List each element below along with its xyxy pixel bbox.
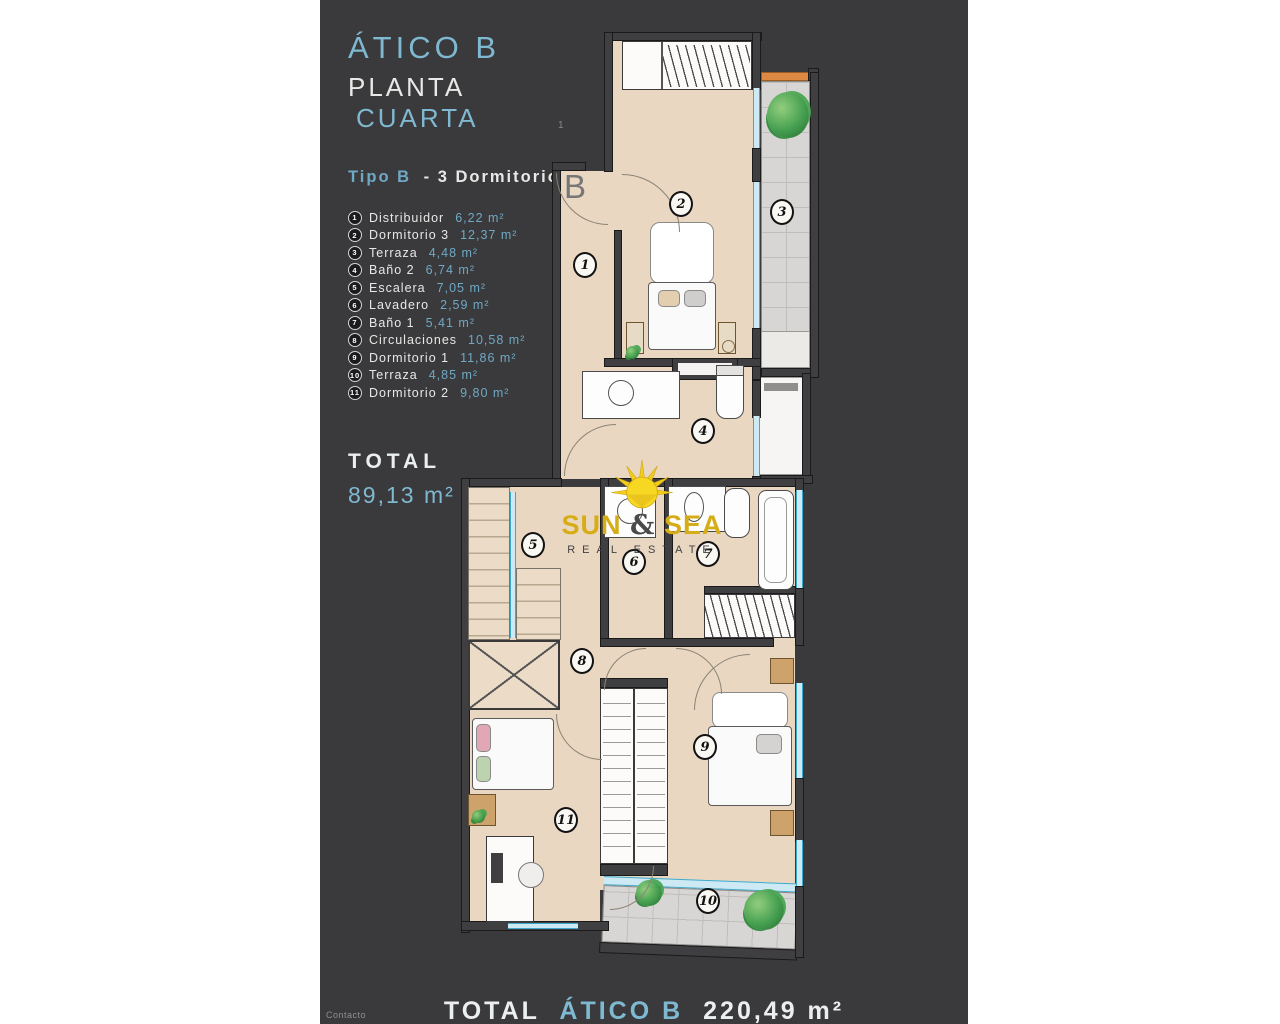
footer-label: TOTAL [444, 997, 540, 1024]
window [753, 182, 760, 328]
room-number-badge: 9 [348, 351, 362, 365]
wall [802, 373, 811, 481]
staircase [468, 487, 510, 640]
wall [614, 230, 622, 362]
page: ÁTICO B PLANTA CUARTA Tipo B - 3 Dormito… [0, 0, 1280, 1024]
room-number-badge: 2 [348, 228, 362, 242]
agency-watermark: SUN & SEA REAL ESTATE [548, 452, 736, 556]
room-name: Dormitorio 2 [369, 386, 449, 400]
plant [744, 890, 784, 930]
room-marker: 11 [554, 807, 578, 833]
type-highlight: Tipo B [348, 168, 411, 186]
nightstand [770, 658, 794, 684]
room-name: Baño 2 [369, 263, 415, 277]
wardrobe [704, 594, 795, 638]
room-name: Baño 1 [369, 316, 415, 330]
wall [795, 588, 804, 646]
bed-pillow [476, 724, 491, 752]
stair-void [468, 640, 560, 710]
terrace-lower-patch [761, 331, 810, 368]
watermark-title: SUN & SEA [548, 510, 736, 541]
floor-word: PLANTA [348, 72, 464, 102]
unit-label: B [564, 168, 586, 206]
staircase-flight [516, 568, 561, 640]
wall [752, 148, 761, 182]
room-name: Terraza [369, 246, 418, 260]
service-niche [759, 377, 803, 475]
wardrobe [600, 688, 668, 864]
room-marker: 5 [521, 532, 545, 558]
room-marker: 1 [573, 252, 597, 278]
wall [795, 886, 804, 958]
window [753, 88, 760, 148]
wall [752, 328, 761, 380]
window [753, 416, 760, 478]
bed-cushion [756, 734, 782, 754]
wall [600, 638, 774, 647]
room-number-badge: 11 [348, 386, 362, 400]
wall [461, 478, 562, 487]
room-name: Escalera [369, 281, 426, 295]
wall [752, 380, 761, 418]
wardrobe-divider [633, 689, 635, 863]
wardrobe [622, 41, 752, 90]
plant [767, 92, 809, 138]
room-marker: 3 [770, 199, 794, 225]
laptop [491, 853, 503, 883]
plant [626, 346, 639, 359]
wall [552, 162, 561, 482]
plant [472, 810, 485, 823]
contact-label: Contacto [326, 1010, 366, 1020]
bathtub [758, 490, 794, 590]
wall [752, 32, 761, 90]
lamp [722, 340, 735, 353]
wardrobe-hangers [663, 45, 750, 87]
nightstand [770, 810, 794, 836]
window [796, 683, 803, 780]
wall [604, 32, 762, 41]
room-marker: 4 [691, 418, 715, 444]
room-marker: 9 [693, 734, 717, 760]
wall [604, 32, 613, 172]
room-name: Distribuidor [369, 211, 444, 225]
wall [810, 72, 819, 378]
footer-total: TOTAL ÁTICO B 220,49 m² [320, 997, 968, 1024]
room-number-badge: 5 [348, 281, 362, 295]
room-name: Dormitorio 1 [369, 351, 449, 365]
sink-basin [608, 380, 634, 406]
bed-cushion [658, 290, 680, 307]
room-number-badge: 7 [348, 316, 362, 330]
wall [795, 778, 804, 842]
room-number-badge: 1 [348, 211, 362, 225]
room-number-badge: 4 [348, 263, 362, 277]
footer-value: 220,49 m² [703, 997, 844, 1024]
room-name: Lavadero [369, 298, 429, 312]
toilet-tank [716, 365, 744, 376]
bed-cushion [684, 290, 706, 307]
watermark-word2: SEA [664, 510, 723, 540]
room-name: Dormitorio 3 [369, 228, 449, 242]
watermark-ampersand: & [630, 510, 655, 541]
bed-pillow [476, 756, 491, 782]
room-number-badge: 8 [348, 333, 362, 347]
footer-highlight: ÁTICO B [559, 997, 683, 1024]
window [796, 490, 803, 590]
room-number-badge: 6 [348, 298, 362, 312]
desk-chair [518, 862, 544, 888]
room-number-badge: 3 [348, 246, 362, 260]
floor-marker: 1 [558, 120, 564, 131]
sun-icon [594, 452, 690, 510]
room-marker: 2 [669, 191, 693, 217]
room-marker: 10 [696, 888, 720, 914]
bathtub-inner [764, 497, 787, 583]
room-number-badge: 10 [348, 368, 362, 382]
wardrobe-shelves [603, 691, 631, 859]
window [508, 923, 578, 929]
watermark-word1: SUN [562, 510, 622, 540]
niche-bar [764, 383, 798, 391]
terrace-edge [761, 72, 811, 81]
room-name: Terraza [369, 368, 418, 382]
room-name: Circulaciones [369, 333, 457, 347]
watermark-subtitle: REAL ESTATE [548, 544, 736, 556]
room-marker: 8 [570, 648, 594, 674]
wardrobe-shelves [637, 691, 665, 859]
